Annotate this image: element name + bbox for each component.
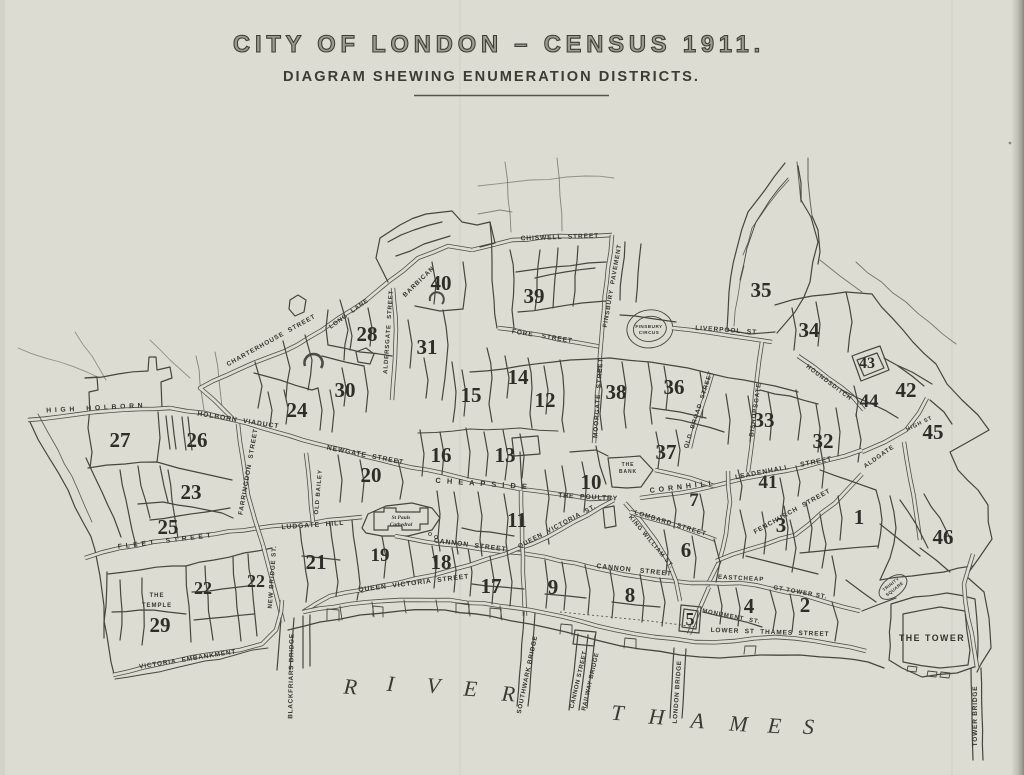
svg-text:15: 15 <box>461 383 482 407</box>
svg-text:S: S <box>802 714 815 740</box>
svg-text:Cathedral: Cathedral <box>390 522 413 528</box>
svg-text:16: 16 <box>431 443 452 467</box>
svg-text:A: A <box>688 707 706 733</box>
svg-text:2: 2 <box>800 593 811 617</box>
svg-text:FINSBURY: FINSBURY <box>635 324 662 329</box>
svg-text:6: 6 <box>681 538 692 562</box>
svg-text:39: 39 <box>524 284 545 308</box>
svg-text:20: 20 <box>361 463 382 487</box>
svg-text:44: 44 <box>860 391 880 412</box>
svg-text:5: 5 <box>686 609 695 629</box>
svg-text:40: 40 <box>431 271 452 295</box>
svg-text:37: 37 <box>656 440 677 464</box>
svg-text:35: 35 <box>751 278 772 302</box>
svg-text:11: 11 <box>507 508 527 532</box>
svg-text:TEMPLE: TEMPLE <box>142 603 172 609</box>
svg-text:THE: THE <box>622 462 635 468</box>
svg-text:BLACKFRIARS BRIDGE: BLACKFRIARS BRIDGE <box>287 633 295 719</box>
svg-text:E: E <box>462 676 479 702</box>
svg-text:7: 7 <box>689 490 699 511</box>
svg-text:34: 34 <box>799 318 821 342</box>
svg-text:E: E <box>766 713 783 739</box>
svg-text:27: 27 <box>110 428 131 452</box>
svg-text:45: 45 <box>923 420 944 444</box>
svg-text:CIRCUS: CIRCUS <box>639 330 660 335</box>
svg-text:THE: THE <box>150 593 165 599</box>
svg-text:26: 26 <box>187 428 208 452</box>
svg-text:BANK: BANK <box>619 469 637 475</box>
svg-text:29: 29 <box>150 613 171 637</box>
svg-text:17: 17 <box>481 574 502 598</box>
svg-text:22: 22 <box>247 571 265 591</box>
svg-text:30: 30 <box>335 378 356 402</box>
svg-text:R: R <box>500 681 517 707</box>
svg-text:3: 3 <box>776 513 787 537</box>
svg-text:10: 10 <box>581 470 602 494</box>
svg-text:R: R <box>342 674 359 700</box>
svg-text:4: 4 <box>744 594 755 618</box>
svg-text:41: 41 <box>759 472 778 493</box>
svg-text:14: 14 <box>508 365 530 389</box>
svg-text:M: M <box>728 710 751 736</box>
svg-text:38: 38 <box>606 380 627 404</box>
svg-text:12: 12 <box>535 388 556 412</box>
svg-text:DIAGRAM SHEWING ENUMERATION DI: DIAGRAM SHEWING ENUMERATION DISTRICTS. <box>283 69 700 85</box>
svg-text:H: H <box>647 703 667 729</box>
svg-text:28: 28 <box>357 322 378 346</box>
svg-text:18: 18 <box>431 550 452 574</box>
svg-text:23: 23 <box>181 480 202 504</box>
svg-text:21: 21 <box>306 550 327 574</box>
svg-text:32: 32 <box>813 429 834 453</box>
svg-text:CITY OF LONDON – CENSUS 1911.: CITY OF LONDON – CENSUS 1911. <box>233 31 765 58</box>
svg-text:42: 42 <box>896 378 917 402</box>
svg-text:33: 33 <box>754 408 775 432</box>
svg-text:1: 1 <box>854 505 865 529</box>
svg-text:St Pauls: St Pauls <box>392 515 411 521</box>
svg-text:31: 31 <box>417 335 438 359</box>
svg-text:24: 24 <box>287 398 309 422</box>
svg-text:43: 43 <box>859 355 875 372</box>
svg-text:22: 22 <box>194 578 212 598</box>
svg-text:TOWER BRIDGE: TOWER BRIDGE <box>972 686 979 747</box>
svg-text:9: 9 <box>548 575 559 599</box>
svg-text:46: 46 <box>933 525 954 549</box>
svg-text:19: 19 <box>371 545 390 566</box>
svg-text:36: 36 <box>664 375 685 399</box>
svg-text:THE TOWER: THE TOWER <box>899 633 965 643</box>
svg-text:8: 8 <box>625 583 636 607</box>
svg-text:13: 13 <box>495 443 516 467</box>
svg-text:25: 25 <box>158 515 179 539</box>
